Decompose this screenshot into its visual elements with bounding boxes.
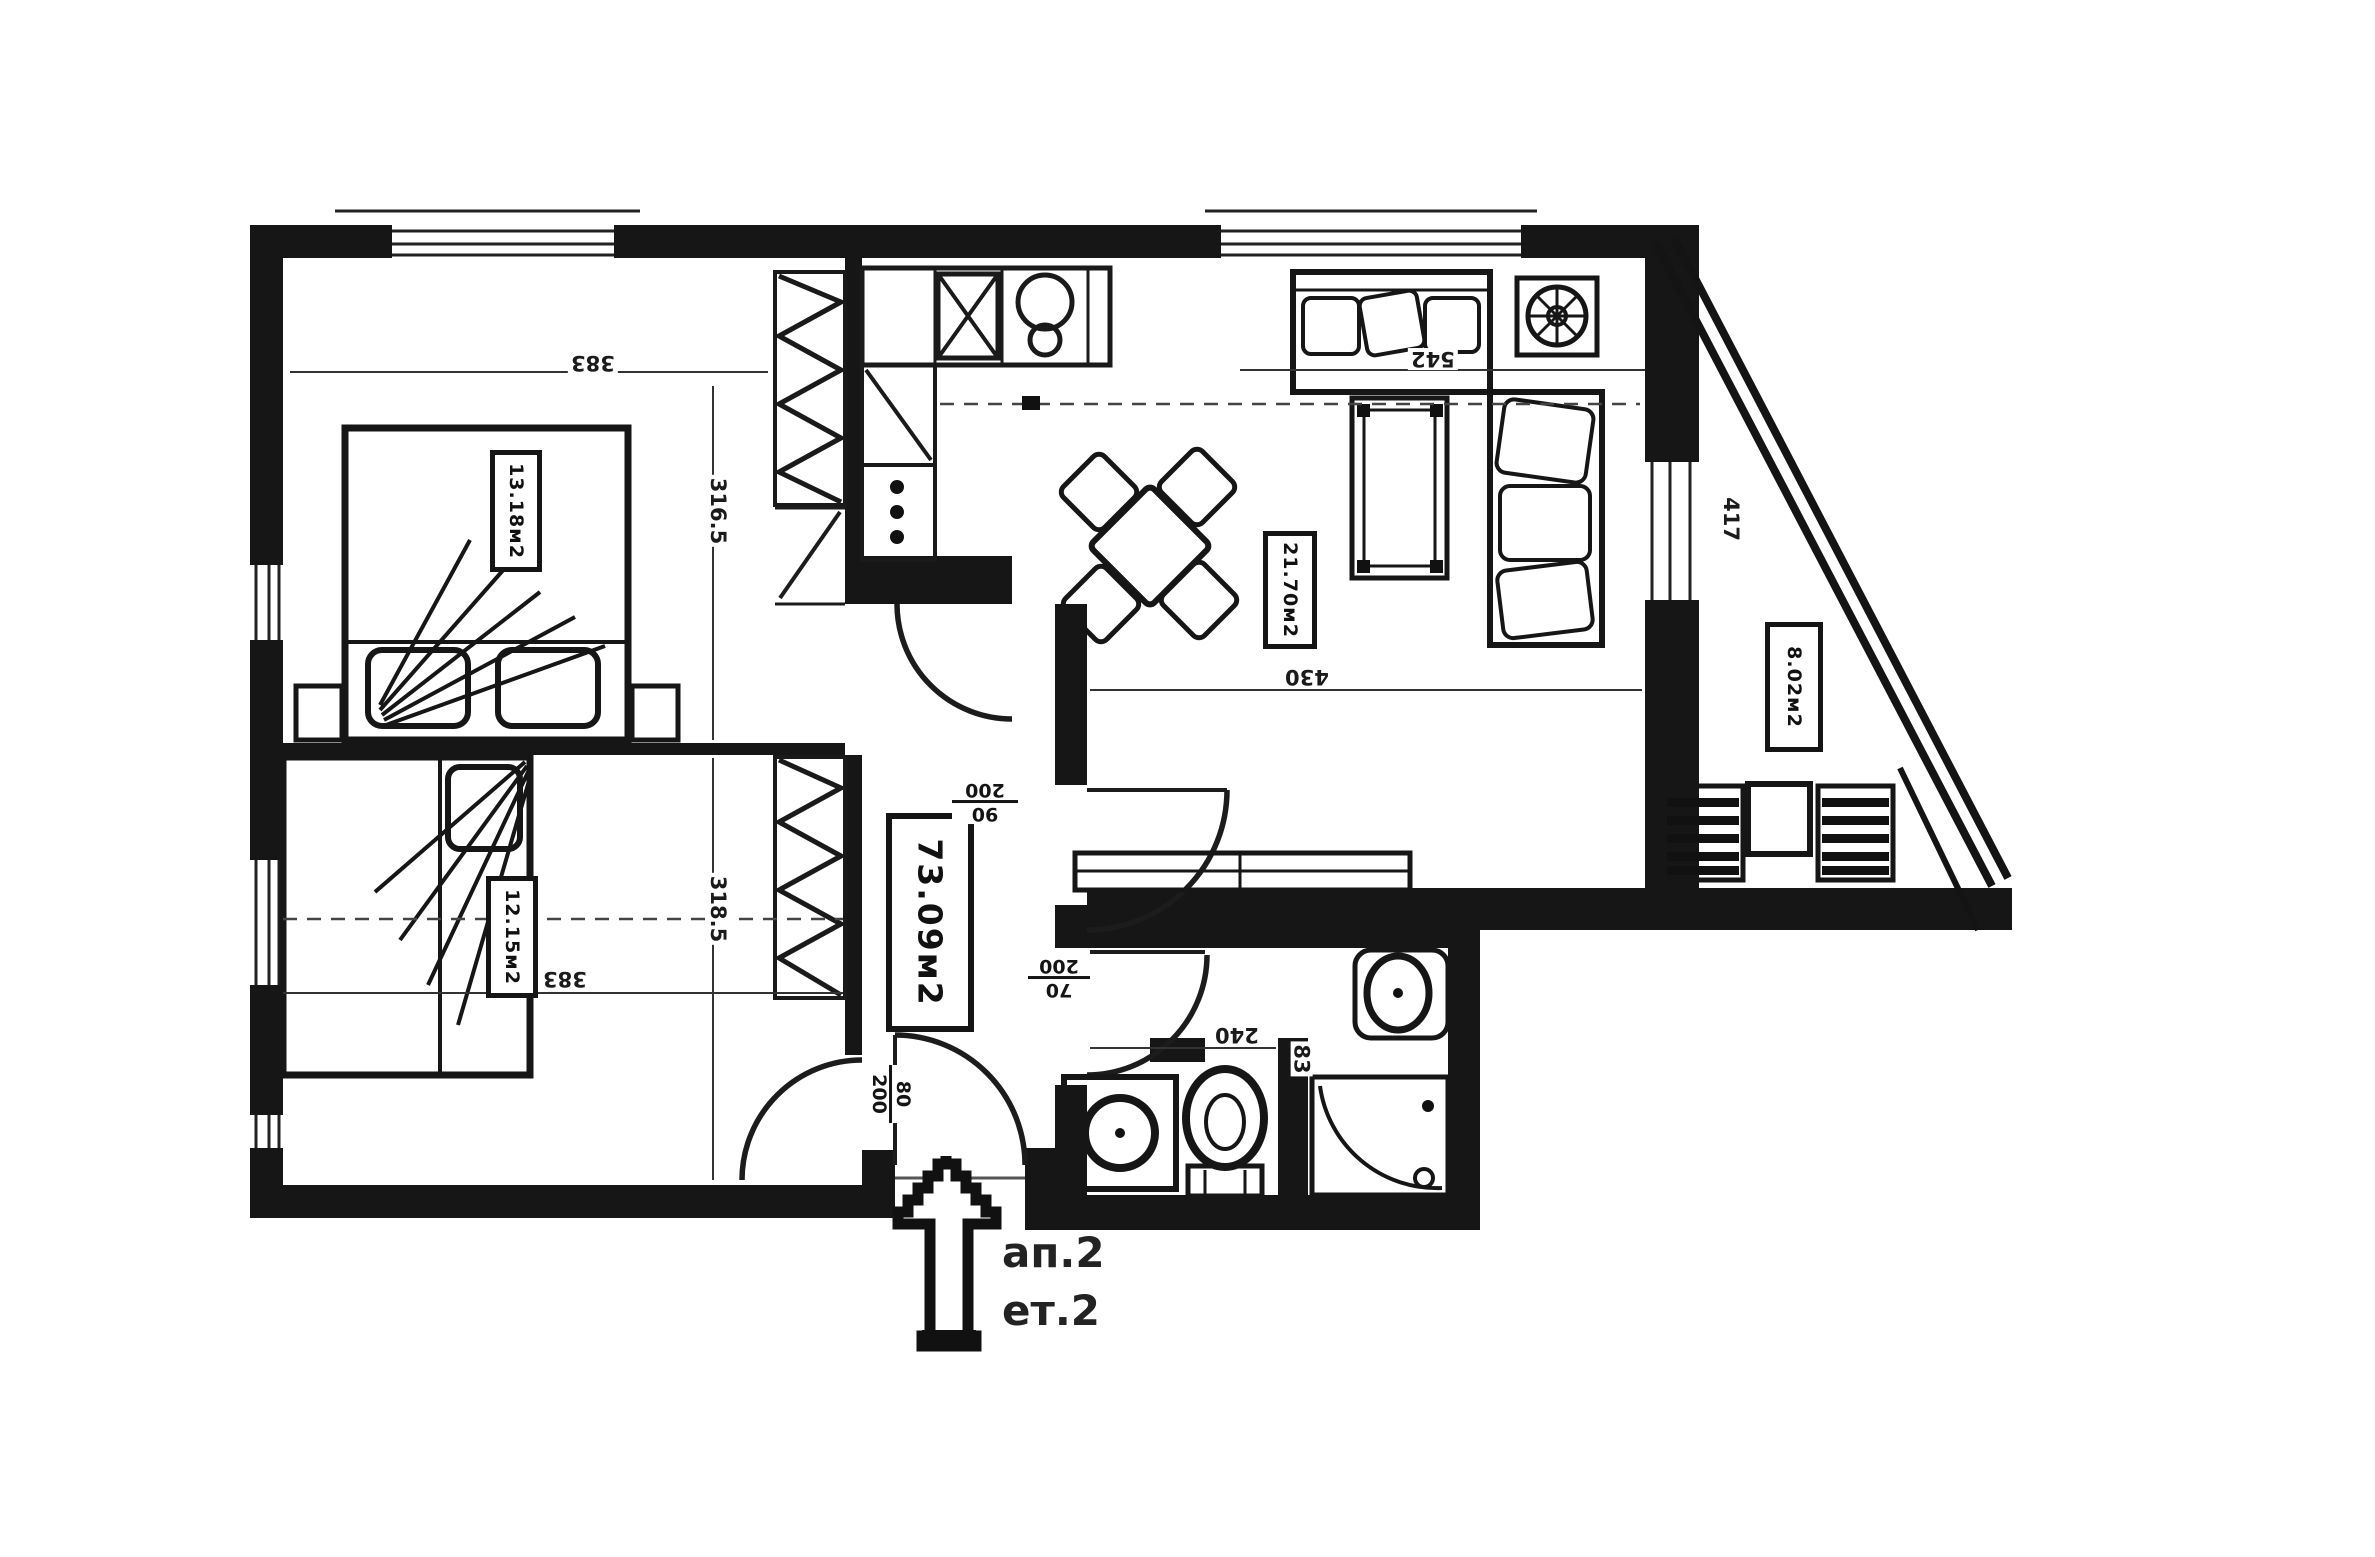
dim-living-width: 542 [1408, 348, 1458, 370]
nightstand [296, 686, 342, 740]
dim-bedroom1-depth: 316.5 [707, 475, 729, 547]
dim-bathroom-side: 83 [1291, 1041, 1313, 1076]
balcony-table [1748, 784, 1810, 854]
door-width: 70 [1028, 977, 1090, 1001]
nightstand [632, 686, 678, 740]
wall [1645, 258, 1699, 462]
wall [845, 556, 1012, 604]
bedroom1-area-value: 13.18м2 [505, 463, 527, 559]
door-width: 90 [952, 801, 1018, 825]
total-area-value: 73.09м2 [911, 838, 950, 1006]
door-width: 80 [890, 1065, 914, 1123]
window-top-living [1205, 211, 1537, 255]
door-height: 200 [869, 1065, 890, 1123]
dimension-lines [283, 370, 1645, 1180]
section-tick [1022, 396, 1040, 410]
entrance-arrow-base [922, 1330, 976, 1346]
door-size-bathroom: 70 200 [1028, 956, 1090, 1000]
dim-bathroom-width: 240 [1212, 1024, 1262, 1046]
window-left-bedroom1 [256, 565, 279, 640]
door-height: 200 [952, 780, 1018, 801]
toilet [1186, 1069, 1264, 1196]
balcony-area-value: 8.02м2 [1783, 646, 1805, 728]
cushion [1496, 561, 1594, 639]
shower [1312, 1077, 1448, 1195]
cushion [1500, 486, 1590, 560]
bedroom1-area-label: 13.18м2 [490, 450, 542, 572]
bedroom2-area-label: 12.15м2 [486, 876, 538, 998]
bed-1 [296, 428, 678, 740]
door-leaf-bedroom1 [780, 512, 840, 598]
kitchen-base-unit [862, 465, 935, 560]
cushion [1425, 298, 1479, 352]
wall [250, 225, 283, 565]
wall [1055, 604, 1087, 785]
kitchen-counters [862, 268, 1110, 560]
floor-plan-canvas: 13.18м2 12.15м2 73.09м2 21.70м2 8.02м2 3… [0, 0, 2375, 1557]
dining-chair [1058, 451, 1140, 533]
wardrobe-2 [775, 757, 845, 998]
bedroom2-area-value: 12.15м2 [501, 889, 523, 985]
wall [283, 743, 845, 755]
door-size-bedroom2: 80 200 [869, 1065, 913, 1123]
wall [250, 985, 283, 1115]
sofa-side [1490, 392, 1602, 645]
bathroom-sink [1355, 950, 1448, 1038]
door-height: 200 [1028, 956, 1090, 977]
pillow [498, 650, 598, 726]
kitchen-fridge [862, 365, 935, 465]
wall [614, 225, 1221, 258]
dining-chair [1156, 446, 1238, 528]
sofa-main [1293, 272, 1490, 392]
door-arc-entry [895, 1035, 1025, 1165]
plant-stand [1517, 278, 1597, 355]
balcony-railing [1655, 238, 2008, 930]
total-area-label: 73.09м2 [886, 813, 974, 1032]
balcony-door-glass [1652, 462, 1690, 600]
dining-table [1089, 485, 1211, 607]
dining-chair [1158, 559, 1240, 641]
wall [1025, 1148, 1055, 1218]
wall [845, 258, 862, 556]
apartment-caption: ап.2 [1002, 1232, 1105, 1274]
wall [1448, 905, 1480, 1195]
living-area-label: 21.70м2 [1263, 531, 1317, 649]
cushion [1495, 398, 1594, 484]
dim-bedroom2-depth: 318.5 [707, 873, 729, 945]
wall [1025, 1195, 1480, 1230]
entrance-arrow [898, 1156, 996, 1346]
dim-balcony-side: 417 [1720, 494, 1742, 544]
dim-bedroom2-width: 383 [540, 968, 590, 990]
wall [845, 755, 862, 1055]
door-arc-bedroom2 [742, 1060, 862, 1180]
wall [1087, 888, 2012, 930]
floor-caption: ет.2 [1002, 1290, 1100, 1332]
floor-plan-drawing [0, 0, 2375, 1557]
window-left-small [256, 1115, 279, 1148]
wall [250, 640, 283, 860]
balcony-lounger-2 [1818, 786, 1893, 880]
coffee-table [1352, 398, 1447, 578]
living-area-value: 21.70м2 [1279, 542, 1301, 638]
dim-living-depth: 430 [1282, 666, 1332, 688]
kitchen-sink [938, 274, 998, 358]
wall [250, 1185, 862, 1218]
kitchen-stove [1018, 275, 1072, 355]
wall [862, 1150, 895, 1218]
wardrobe-1 [775, 272, 845, 505]
tv-cabinet [1075, 853, 1410, 890]
dim-bedroom1-width: 383 [568, 352, 618, 374]
balcony-area-label: 8.02м2 [1765, 622, 1823, 752]
cushion [1303, 298, 1359, 354]
door-arc-kitchen-hall [897, 604, 1012, 719]
window-left-bedroom2 [256, 860, 279, 985]
door-size-hall-living: 90 200 [952, 780, 1018, 824]
